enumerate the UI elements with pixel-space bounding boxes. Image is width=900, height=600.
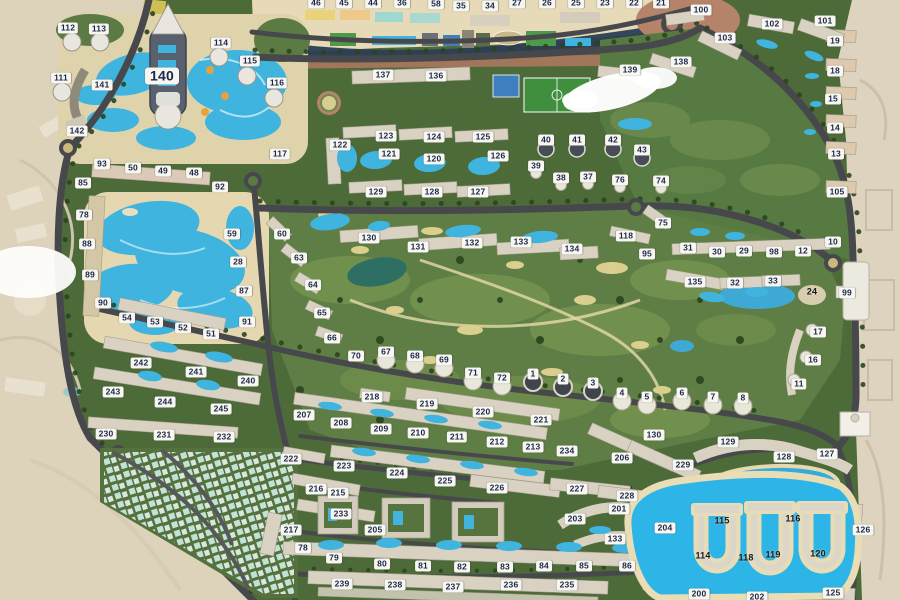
plot-label-2: 2 [558, 374, 569, 385]
plot-label-212: 212 [487, 437, 508, 448]
plot-label-41: 41 [569, 135, 585, 146]
plot-label-118: 118 [616, 231, 636, 242]
plot-label-83: 83 [497, 562, 513, 573]
plot-label-125: 125 [823, 588, 844, 599]
plot-label-99: 99 [839, 288, 855, 299]
plot-label-202: 202 [747, 592, 768, 600]
plot-label-226: 226 [487, 483, 508, 494]
plot-label-69: 69 [436, 355, 452, 366]
plot-label-84: 84 [536, 561, 552, 572]
plot-label-244: 244 [155, 397, 176, 408]
plot-label-76: 76 [612, 175, 628, 186]
plot-label-240: 240 [238, 376, 259, 387]
plot-label-239: 239 [332, 579, 353, 590]
plot-label-237: 237 [443, 582, 464, 593]
plot-label-129: 129 [366, 187, 387, 198]
plot-label-112: 112 [58, 23, 78, 34]
plot-label-121: 121 [379, 149, 400, 160]
plot-label-227: 227 [567, 484, 588, 495]
plot-label-30: 30 [709, 247, 725, 258]
plot-label-63: 63 [291, 253, 307, 264]
plot-label-103: 103 [715, 33, 736, 44]
plot-label-78: 78 [76, 210, 92, 221]
plot-label-4: 4 [617, 388, 628, 399]
plot-label-32: 32 [727, 278, 743, 289]
plot-label-26: 26 [539, 0, 555, 9]
plot-label-100: 100 [691, 5, 712, 16]
plot-label-90: 90 [95, 298, 111, 309]
plot-label-128: 128 [422, 187, 443, 198]
plot-label-219: 219 [417, 399, 438, 410]
plot-label-140: 140 [145, 68, 179, 85]
plot-label-119: 119 [762, 550, 783, 561]
plot-label-28: 28 [230, 257, 246, 268]
plot-label-204: 204 [655, 523, 676, 534]
plot-label-36: 36 [394, 0, 410, 9]
plot-label-85: 85 [75, 178, 91, 189]
plot-label-67: 67 [378, 347, 394, 358]
plot-label-234: 234 [557, 446, 578, 457]
plot-label-3: 3 [588, 378, 599, 389]
plot-label-80: 80 [374, 559, 390, 570]
plot-label-225: 225 [435, 476, 456, 487]
plot-label-131: 131 [408, 242, 429, 253]
plot-label-111: 111 [51, 73, 71, 84]
plot-label-122: 122 [330, 140, 351, 151]
plot-label-115: 115 [711, 516, 732, 527]
plot-label-102: 102 [762, 19, 783, 30]
plot-label-50: 50 [125, 163, 141, 174]
plot-label-136: 136 [426, 71, 447, 82]
plot-label-11: 11 [791, 379, 806, 390]
plot-label-245: 245 [211, 404, 232, 415]
plot-label-120: 120 [807, 549, 829, 560]
plot-label-31: 31 [680, 243, 696, 254]
plot-label-1: 1 [528, 369, 539, 380]
plot-label-10: 10 [825, 237, 841, 248]
plot-label-217: 217 [281, 525, 302, 536]
plot-label-138: 138 [671, 57, 692, 68]
plot-label-7: 7 [708, 392, 719, 403]
plot-label-242: 242 [131, 358, 152, 369]
plot-label-81: 81 [415, 561, 431, 572]
plot-label-8: 8 [738, 393, 749, 404]
plot-label-33: 33 [765, 276, 781, 287]
plot-label-221: 221 [531, 415, 552, 426]
plot-label-71: 71 [465, 368, 481, 379]
plot-label-92: 92 [212, 182, 228, 193]
plot-label-91: 91 [239, 317, 255, 328]
plot-label-85: 85 [576, 561, 592, 572]
plot-label-125: 125 [473, 132, 494, 143]
plot-label-231: 231 [154, 430, 175, 441]
plot-label-86: 86 [619, 561, 635, 572]
plot-label-141: 141 [92, 80, 113, 91]
plot-label-59: 59 [224, 229, 240, 240]
plot-label-66: 66 [324, 333, 340, 344]
plot-label-208: 208 [331, 418, 352, 429]
plot-label-64: 64 [305, 280, 321, 291]
plot-label-14: 14 [827, 123, 843, 134]
masterplan-map: 4645443658353427262523222111211311411511… [0, 0, 900, 600]
plot-label-16: 16 [805, 355, 821, 366]
plot-label-211: 211 [447, 432, 467, 443]
plot-label-209: 209 [371, 424, 392, 435]
plot-label-135: 135 [685, 277, 706, 288]
plot-label-44: 44 [365, 0, 381, 9]
plot-label-51: 51 [203, 329, 219, 340]
plot-label-222: 222 [281, 454, 302, 465]
plot-label-238: 238 [385, 580, 406, 591]
plot-label-223: 223 [334, 461, 355, 472]
plot-label-43: 43 [634, 145, 650, 156]
plot-label-54: 54 [119, 313, 135, 324]
plot-label-46: 46 [308, 0, 324, 9]
plot-label-113: 113 [89, 24, 109, 35]
plot-label-49: 49 [155, 166, 171, 177]
plot-label-52: 52 [175, 323, 191, 334]
plot-label-79: 79 [326, 553, 342, 564]
plot-label-35: 35 [453, 1, 469, 12]
plot-label-114: 114 [211, 38, 231, 49]
plot-label-82: 82 [454, 562, 470, 573]
plot-label-133: 133 [511, 237, 532, 248]
plot-label-15: 15 [825, 94, 841, 105]
plot-label-37: 37 [580, 172, 596, 183]
plot-label-65: 65 [314, 308, 330, 319]
plot-label-38: 38 [553, 173, 569, 184]
plot-label-139: 139 [620, 65, 641, 76]
plot-label-25: 25 [568, 0, 584, 9]
plot-label-134: 134 [562, 244, 583, 255]
plot-label-13: 13 [828, 149, 844, 160]
plot-label-120: 120 [424, 154, 445, 165]
plot-label-137: 137 [373, 70, 394, 81]
plot-label-24: 24 [804, 287, 820, 298]
plot-label-5: 5 [642, 392, 653, 403]
plot-label-201: 201 [609, 504, 630, 515]
plot-label-78: 78 [295, 543, 311, 554]
plot-label-6: 6 [677, 388, 688, 399]
plot-label-235: 235 [557, 580, 578, 591]
plot-label-228: 228 [617, 491, 638, 502]
plot-label-53: 53 [147, 317, 163, 328]
plot-label-229: 229 [673, 460, 694, 471]
plot-label-95: 95 [639, 249, 655, 260]
plot-label-116: 116 [782, 514, 803, 525]
plot-label-129: 129 [718, 437, 739, 448]
plot-label-21: 21 [653, 0, 669, 9]
plot-label-40: 40 [538, 135, 554, 146]
plot-label-126: 126 [853, 525, 874, 536]
plot-label-205: 205 [365, 525, 386, 536]
plot-label-17: 17 [810, 327, 826, 338]
plot-label-126: 126 [488, 151, 509, 162]
plot-label-232: 232 [214, 432, 235, 443]
plot-label-224: 224 [387, 468, 408, 479]
plot-label-210: 210 [408, 428, 429, 439]
plot-label-133: 133 [605, 534, 626, 545]
plot-label-236: 236 [501, 580, 522, 591]
plot-label-114: 114 [692, 551, 713, 562]
plot-label-68: 68 [407, 351, 423, 362]
plot-label-87: 87 [236, 286, 252, 297]
plot-label-130: 130 [359, 233, 380, 244]
plot-label-45: 45 [336, 0, 352, 9]
plot-label-34: 34 [482, 1, 498, 12]
plot-label-241: 241 [186, 367, 207, 378]
plot-label-18: 18 [827, 66, 843, 77]
plot-label-98: 98 [766, 247, 782, 258]
plot-label-105: 105 [827, 187, 848, 198]
plot-label-117: 117 [270, 149, 290, 160]
plot-label-39: 39 [528, 161, 544, 172]
plot-label-200: 200 [689, 589, 710, 600]
plot-label-27: 27 [509, 0, 525, 9]
plot-label-203: 203 [565, 514, 586, 525]
plot-label-74: 74 [653, 176, 669, 187]
plot-label-206: 206 [612, 453, 633, 464]
plot-label-72: 72 [494, 373, 510, 384]
plot-label-132: 132 [462, 238, 483, 249]
plot-label-88: 88 [79, 239, 95, 250]
plot-label-93: 93 [94, 159, 110, 170]
plot-label-118: 118 [735, 553, 756, 564]
plot-label-127: 127 [468, 187, 489, 198]
plot-label-233: 233 [331, 509, 352, 520]
plot-label-23: 23 [597, 0, 613, 9]
plot-label-220: 220 [473, 407, 494, 418]
plot-label-75: 75 [655, 218, 671, 229]
plot-label-89: 89 [82, 270, 98, 281]
plot-label-101: 101 [815, 16, 836, 27]
plot-label-48: 48 [186, 168, 202, 179]
plot-label-230: 230 [96, 429, 117, 440]
plot-label-123: 123 [376, 131, 397, 142]
plot-label-116: 116 [267, 78, 287, 89]
plot-label-243: 243 [103, 387, 124, 398]
plot-labels-layer: 4645443658353427262523222111211311411511… [0, 0, 900, 600]
plot-label-213: 213 [523, 442, 544, 453]
plot-label-58: 58 [428, 0, 444, 10]
plot-label-216: 216 [306, 484, 327, 495]
plot-label-29: 29 [736, 246, 752, 257]
plot-label-12: 12 [795, 246, 811, 257]
plot-label-42: 42 [605, 135, 621, 146]
plot-label-124: 124 [424, 132, 445, 143]
plot-label-127: 127 [817, 449, 838, 460]
plot-label-19: 19 [827, 36, 843, 47]
plot-label-215: 215 [328, 488, 349, 499]
plot-label-60: 60 [274, 229, 290, 240]
plot-label-115: 115 [240, 56, 260, 67]
plot-label-70: 70 [348, 351, 364, 362]
plot-label-130: 130 [644, 430, 665, 441]
plot-label-128: 128 [774, 452, 795, 463]
plot-label-142: 142 [67, 126, 88, 137]
plot-label-207: 207 [294, 410, 315, 421]
plot-label-218: 218 [362, 392, 383, 403]
plot-label-22: 22 [626, 0, 642, 9]
